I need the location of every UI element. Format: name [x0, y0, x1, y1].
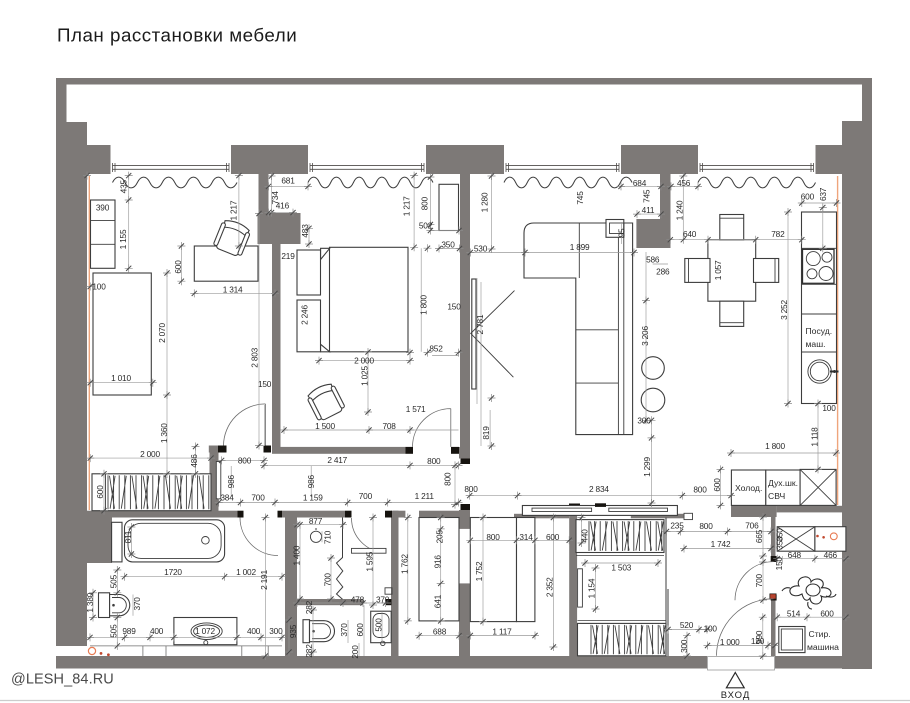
- svg-text:782: 782: [771, 229, 785, 239]
- svg-text:286: 286: [656, 267, 670, 277]
- svg-text:502: 502: [419, 220, 433, 230]
- svg-text:Холод.: Холод.: [735, 483, 762, 493]
- svg-text:2 070: 2 070: [157, 323, 167, 343]
- svg-text:986: 986: [306, 474, 316, 488]
- svg-text:1 154: 1 154: [587, 578, 597, 598]
- svg-text:1 500: 1 500: [315, 421, 335, 431]
- svg-text:800: 800: [238, 455, 252, 465]
- svg-text:600: 600: [820, 608, 834, 618]
- svg-text:1 899: 1 899: [570, 242, 590, 252]
- svg-text:150: 150: [774, 556, 784, 570]
- svg-text:300: 300: [269, 626, 283, 636]
- svg-text:440: 440: [580, 529, 590, 543]
- svg-text:@LESH_84.RU: @LESH_84.RU: [11, 672, 114, 688]
- svg-text:370: 370: [339, 623, 349, 637]
- svg-text:800: 800: [699, 521, 713, 531]
- svg-text:100: 100: [704, 623, 718, 633]
- svg-text:1 800: 1 800: [765, 441, 785, 451]
- svg-text:1 380: 1 380: [85, 592, 95, 612]
- svg-text:688: 688: [433, 627, 447, 637]
- svg-text:400: 400: [150, 626, 164, 636]
- svg-text:800: 800: [486, 532, 500, 542]
- svg-text:1 762: 1 762: [399, 554, 409, 574]
- svg-text:1 217: 1 217: [229, 200, 239, 220]
- svg-text:640: 640: [683, 229, 697, 239]
- svg-text:120: 120: [751, 636, 765, 646]
- svg-text:411: 411: [642, 205, 655, 215]
- svg-text:2 246: 2 246: [300, 305, 310, 325]
- svg-text:1 072: 1 072: [195, 626, 215, 636]
- svg-text:505: 505: [108, 574, 118, 588]
- svg-text:282: 282: [304, 600, 314, 614]
- svg-text:852: 852: [429, 343, 443, 353]
- svg-text:681: 681: [281, 176, 295, 186]
- svg-text:1 595: 1 595: [365, 551, 375, 571]
- svg-text:Стир.: Стир.: [809, 629, 831, 639]
- svg-text:200: 200: [350, 645, 360, 659]
- svg-text:2 803: 2 803: [250, 347, 260, 367]
- svg-text:586: 586: [646, 255, 660, 265]
- svg-text:150: 150: [447, 301, 461, 311]
- svg-text:219: 219: [281, 251, 295, 261]
- svg-text:350: 350: [775, 536, 785, 550]
- svg-text:641: 641: [433, 594, 443, 608]
- svg-text:600: 600: [801, 191, 815, 201]
- svg-text:100: 100: [92, 282, 106, 292]
- svg-text:ВХОД: ВХОД: [721, 690, 751, 701]
- svg-text:2 000: 2 000: [140, 449, 160, 459]
- svg-text:1 155: 1 155: [118, 229, 128, 249]
- svg-text:384: 384: [220, 493, 234, 503]
- svg-text:800: 800: [443, 472, 453, 486]
- svg-text:1 752: 1 752: [474, 561, 484, 581]
- svg-text:700: 700: [251, 493, 265, 503]
- svg-text:483: 483: [300, 224, 310, 238]
- svg-text:916: 916: [433, 555, 443, 569]
- svg-text:машина: машина: [807, 642, 839, 652]
- svg-text:708: 708: [382, 421, 396, 431]
- svg-text:600: 600: [712, 478, 722, 492]
- svg-text:3 206: 3 206: [640, 326, 650, 346]
- svg-text:648: 648: [788, 550, 802, 560]
- svg-text:989: 989: [122, 626, 136, 636]
- svg-text:2 000: 2 000: [354, 356, 374, 366]
- svg-text:600: 600: [95, 485, 105, 499]
- svg-text:390: 390: [96, 203, 110, 213]
- svg-text:1 800: 1 800: [419, 295, 429, 315]
- svg-text:95: 95: [617, 228, 627, 237]
- svg-text:СВЧ: СВЧ: [768, 491, 786, 501]
- svg-text:Посуд.: Посуд.: [806, 326, 833, 336]
- svg-text:800: 800: [420, 196, 430, 210]
- svg-text:370: 370: [376, 595, 390, 605]
- svg-text:205: 205: [435, 530, 445, 544]
- svg-text:1 360: 1 360: [159, 423, 169, 443]
- svg-text:811: 811: [123, 530, 133, 543]
- svg-text:877: 877: [309, 516, 323, 526]
- svg-text:1 299: 1 299: [642, 457, 652, 477]
- svg-text:1 025: 1 025: [360, 366, 370, 386]
- svg-text:План расстановки мебели: План расстановки мебели: [57, 25, 297, 46]
- svg-text:маш.: маш.: [806, 339, 826, 349]
- svg-text:2 834: 2 834: [589, 484, 609, 494]
- svg-text:1 280: 1 280: [479, 192, 489, 212]
- svg-text:500: 500: [373, 618, 383, 632]
- svg-text:514: 514: [787, 608, 801, 618]
- svg-text:235: 235: [670, 521, 684, 531]
- svg-text:1 159: 1 159: [303, 493, 323, 503]
- svg-text:456: 456: [677, 178, 691, 188]
- svg-text:3 252: 3 252: [779, 300, 789, 320]
- svg-text:370: 370: [132, 597, 142, 611]
- svg-text:745: 745: [575, 191, 585, 205]
- svg-text:800: 800: [464, 484, 478, 494]
- svg-text:350: 350: [441, 240, 455, 250]
- svg-text:700: 700: [322, 573, 332, 587]
- svg-text:710: 710: [322, 530, 332, 544]
- svg-text:2 417: 2 417: [327, 455, 347, 465]
- svg-text:300: 300: [637, 415, 651, 425]
- svg-text:530: 530: [474, 244, 488, 254]
- svg-text:1720: 1720: [164, 567, 182, 577]
- svg-text:520: 520: [680, 620, 694, 630]
- svg-text:700: 700: [359, 491, 373, 501]
- svg-text:400: 400: [247, 626, 261, 636]
- svg-text:986: 986: [226, 474, 236, 488]
- svg-text:1 057: 1 057: [713, 260, 723, 280]
- svg-text:1 571: 1 571: [406, 404, 426, 414]
- svg-text:314: 314: [519, 532, 533, 542]
- svg-text:600: 600: [355, 623, 365, 637]
- svg-text:600: 600: [173, 260, 183, 274]
- svg-text:800: 800: [693, 485, 707, 495]
- svg-text:416: 416: [276, 201, 290, 211]
- svg-text:2 352: 2 352: [544, 577, 554, 597]
- svg-text:150: 150: [258, 379, 272, 389]
- svg-text:486: 486: [189, 454, 199, 468]
- svg-text:600: 600: [546, 532, 560, 542]
- svg-text:2 191: 2 191: [259, 570, 269, 590]
- svg-text:700: 700: [754, 573, 764, 587]
- svg-text:2 781: 2 781: [475, 314, 485, 334]
- svg-text:100: 100: [822, 403, 836, 413]
- svg-text:1 742: 1 742: [711, 539, 731, 549]
- svg-text:1 117: 1 117: [492, 627, 512, 637]
- svg-text:300: 300: [679, 639, 689, 653]
- svg-text:1 217: 1 217: [402, 196, 412, 216]
- svg-text:1 503: 1 503: [611, 563, 631, 573]
- svg-text:505: 505: [108, 624, 118, 638]
- svg-text:Дух.шк.: Дух.шк.: [768, 478, 798, 488]
- svg-text:1 240: 1 240: [674, 200, 684, 220]
- svg-text:637: 637: [818, 187, 828, 201]
- svg-text:1 211: 1 211: [415, 491, 435, 501]
- svg-text:466: 466: [824, 550, 838, 560]
- svg-text:282: 282: [304, 644, 314, 658]
- svg-text:1 000: 1 000: [720, 637, 740, 647]
- svg-text:745: 745: [641, 189, 651, 203]
- svg-text:935: 935: [288, 624, 298, 638]
- svg-text:435: 435: [118, 179, 128, 193]
- svg-text:706: 706: [745, 521, 759, 531]
- svg-text:1 002: 1 002: [236, 567, 256, 577]
- svg-text:819: 819: [481, 426, 491, 440]
- svg-text:1 010: 1 010: [111, 373, 131, 383]
- svg-text:1 118: 1 118: [810, 427, 820, 447]
- svg-text:684: 684: [633, 178, 647, 188]
- svg-text:1 400: 1 400: [291, 545, 301, 565]
- svg-text:665: 665: [754, 529, 764, 543]
- svg-text:800: 800: [427, 456, 441, 466]
- svg-text:1 314: 1 314: [223, 284, 243, 294]
- svg-text:478: 478: [351, 595, 365, 605]
